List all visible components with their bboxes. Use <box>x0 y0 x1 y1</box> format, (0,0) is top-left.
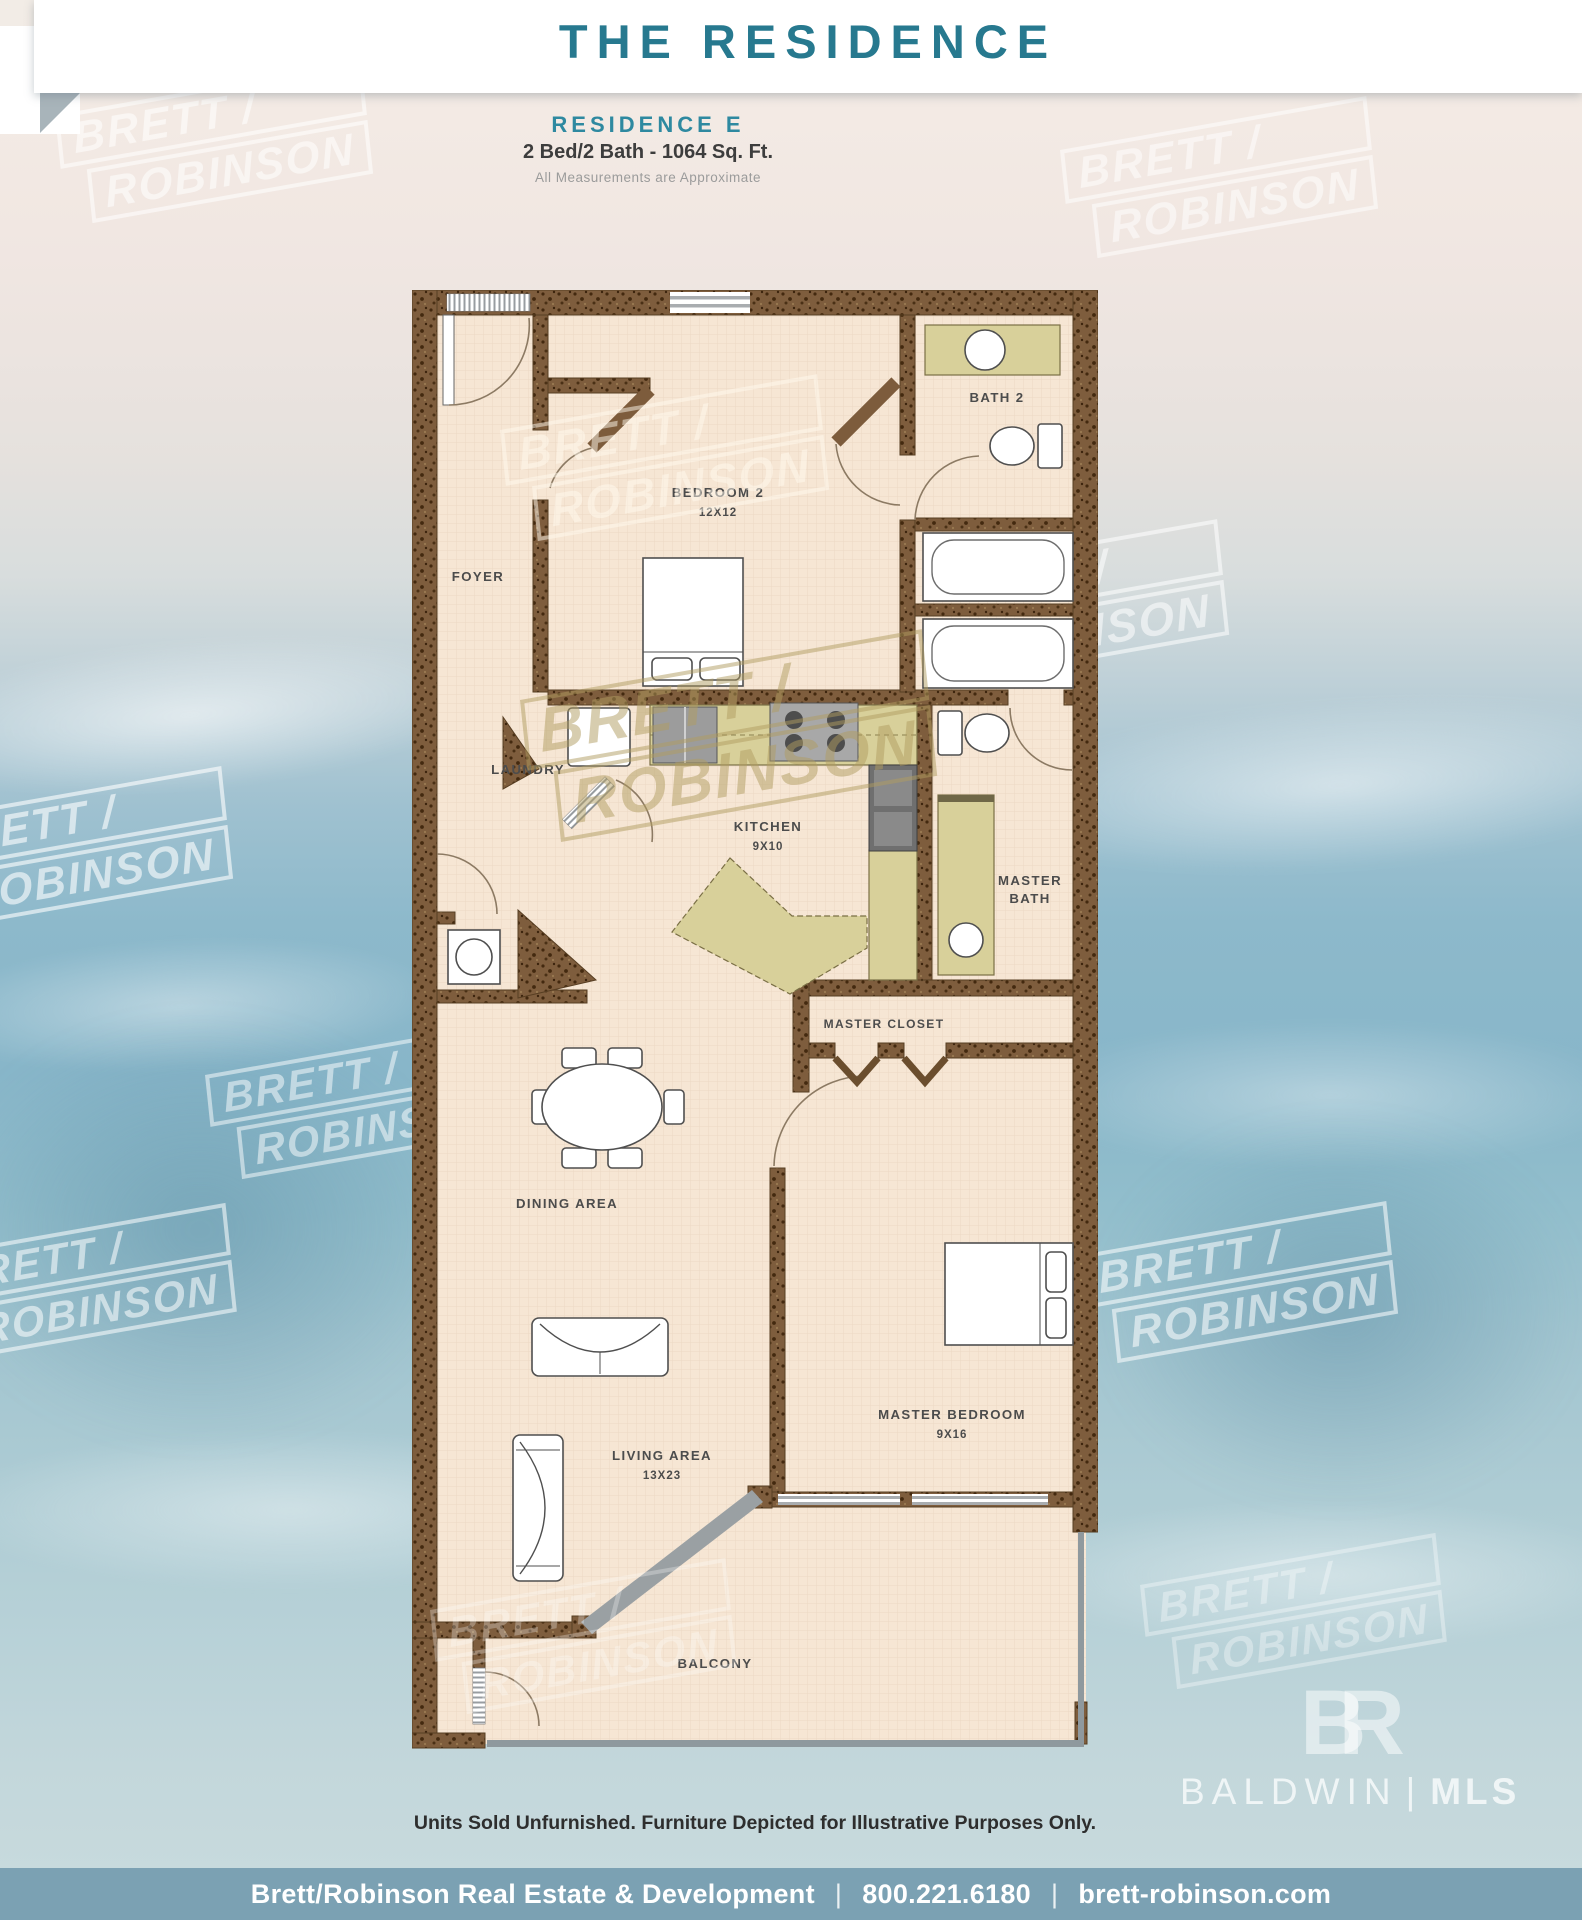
room-label-bedroom2: BEDROOM 2 <box>672 485 764 500</box>
balcony-railing <box>487 1740 1084 1747</box>
measurement-note: All Measurements are Approximate <box>0 170 1296 185</box>
room-dim-bedroom2: 12X12 <box>699 507 737 519</box>
master-sink-icon <box>949 923 983 957</box>
refrigerator-icon <box>653 707 717 763</box>
powder-toilet-icon <box>448 930 500 984</box>
bathtub-icon <box>923 533 1073 601</box>
bath2-sink-icon <box>965 330 1005 370</box>
loveseat-icon <box>513 1435 563 1581</box>
br-monogram: BR <box>1300 1682 1500 1765</box>
master-bathtub-icon <box>923 619 1073 688</box>
stove-icon <box>770 703 858 761</box>
logo-divider: | <box>1406 1771 1423 1812</box>
room-label-master-bath-1: MASTER <box>998 873 1062 888</box>
room-label-master-bedroom: MASTER BEDROOM <box>878 1407 1026 1422</box>
footer-separator: | <box>835 1879 842 1910</box>
master-bed-icon <box>945 1243 1073 1345</box>
room-dim-kitchen: 9X10 <box>753 841 784 853</box>
sofa-icon <box>532 1318 668 1376</box>
footer-disclaimer: Units Sold Unfurnished. Furniture Depict… <box>375 1812 1135 1835</box>
pantry-cabinet-icon <box>869 765 917 851</box>
room-label-balcony: BALCONY <box>677 1656 752 1671</box>
baldwin-text: BALDWIN <box>1180 1771 1398 1812</box>
footer-bar: Brett/Robinson Real Estate & Development… <box>0 1868 1582 1920</box>
room-label-foyer: FOYER <box>452 569 504 584</box>
balcony-railing <box>1078 1532 1084 1744</box>
room-label-kitchen: KITCHEN <box>734 819 802 834</box>
baldwin-mls-logo: BR BALDWIN|MLS <box>1180 1682 1500 1813</box>
sea-shade <box>1100 1120 1580 1500</box>
room-label-bath2: BATH 2 <box>969 390 1024 405</box>
room-dim-living: 13X23 <box>643 1470 681 1482</box>
baldwin-mls-name: BALDWIN|MLS <box>1180 1771 1500 1813</box>
room-label-master-bath-2: BATH <box>1009 891 1050 906</box>
room-label-living: LIVING AREA <box>612 1448 712 1463</box>
residence-name: RESIDENCE E <box>0 112 1296 138</box>
room-label-master-closet: MASTER CLOSET <box>824 1017 945 1031</box>
kitchen-cabinet <box>869 850 917 980</box>
room-label-laundry: LAUNDRY <box>491 762 565 777</box>
residence-specs: 2 Bed/2 Bath - 1064 Sq. Ft. <box>0 141 1296 164</box>
bed-icon <box>643 558 743 686</box>
bath2-toilet-icon <box>990 424 1062 468</box>
washer-icon <box>568 708 630 766</box>
company-name: Brett/Robinson Real Estate & Development <box>251 1879 815 1910</box>
footer-separator: | <box>1051 1879 1058 1910</box>
mls-text: MLS <box>1430 1771 1520 1812</box>
master-toilet-icon <box>938 711 1009 755</box>
floor-plan: FOYER BEDROOM 2 12X12 BATH 2 LAUNDRY KIT… <box>412 290 1098 1760</box>
page-title: THE RESIDENCE <box>34 14 1582 69</box>
website-text: brett-robinson.com <box>1078 1879 1331 1910</box>
room-label-dining: DINING AREA <box>516 1196 618 1211</box>
phone-number: 800.221.6180 <box>862 1879 1031 1910</box>
room-dim-master-bedroom: 9X16 <box>937 1429 968 1441</box>
vanity-edge <box>938 795 994 802</box>
